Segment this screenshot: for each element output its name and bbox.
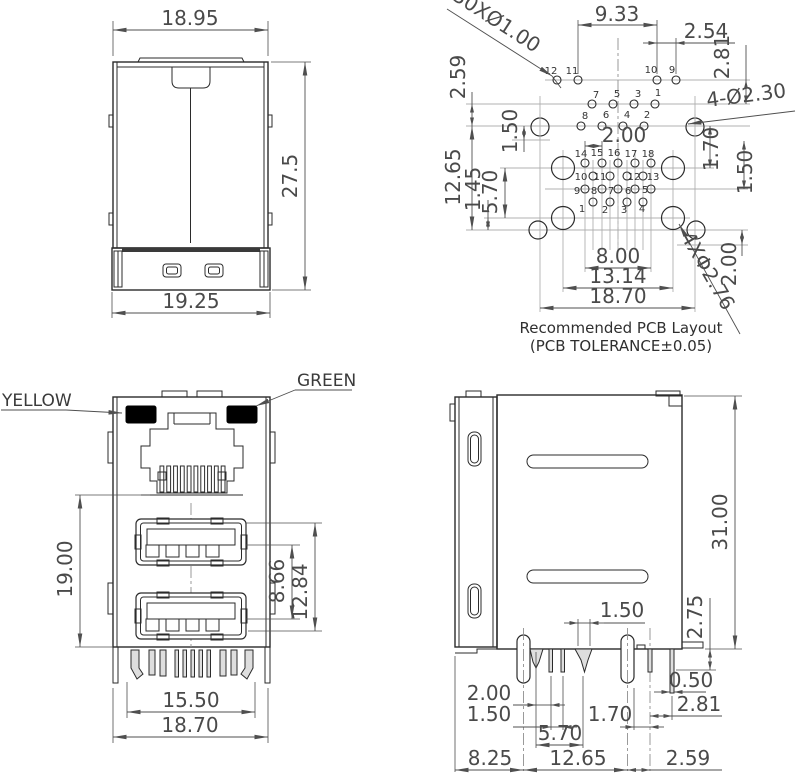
- pin-label: 8: [591, 186, 597, 197]
- dim-text-18-95: 18.95: [161, 6, 218, 30]
- label-30x-holes: 30XØ1.00: [449, 0, 545, 57]
- dim-text-27-5: 27.5: [278, 154, 302, 199]
- pin-label: 8: [582, 111, 588, 122]
- pin-label: 2: [602, 205, 608, 216]
- svg-text:1.50: 1.50: [600, 598, 645, 622]
- svg-text:2.59: 2.59: [446, 55, 470, 100]
- pin-label: 6: [603, 110, 609, 121]
- svg-text:1.50: 1.50: [733, 150, 757, 195]
- svg-text:1.70: 1.70: [588, 702, 633, 726]
- usb-port-2: [135, 592, 247, 640]
- dim-2-00-right: 2.00: [717, 230, 742, 286]
- svg-text:2.00: 2.00: [717, 242, 741, 287]
- pin-label: 1: [655, 88, 661, 99]
- pin-label: 11: [566, 66, 579, 77]
- dim-27-5: 27.5: [271, 62, 311, 290]
- svg-text:18.70: 18.70: [589, 284, 646, 308]
- svg-text:12.84: 12.84: [288, 563, 312, 620]
- pin-label: 10: [645, 65, 658, 76]
- pin-label: 9: [669, 65, 675, 76]
- base-slot-right: [205, 264, 223, 277]
- pin-label: 17: [625, 149, 638, 160]
- svg-text:19.00: 19.00: [53, 540, 77, 597]
- svg-text:5.70: 5.70: [478, 170, 502, 215]
- technical-drawing-page: 18.95 27.5 19.25: [0, 0, 800, 773]
- side-body-outline: [497, 395, 682, 649]
- pin-label: 5: [614, 89, 620, 100]
- dim-18-95: 18.95: [113, 6, 268, 56]
- svg-text:8.25: 8.25: [468, 746, 513, 770]
- pin-label: 6: [625, 186, 631, 197]
- pcb-holes-top: [553, 76, 680, 130]
- shield-base-outline: [112, 248, 270, 290]
- svg-text:2.75: 2.75: [683, 595, 707, 640]
- pin-label: 15: [591, 148, 604, 159]
- pin-label: 16: [608, 148, 621, 159]
- dim-1-50-right: 1.50: [733, 141, 757, 194]
- label-green-led: GREEN: [256, 371, 356, 406]
- led-yellow: [126, 406, 156, 423]
- side-dimple-bottom: [527, 570, 648, 583]
- svg-text:5.70: 5.70: [538, 721, 583, 745]
- view-shield-front: 18.95 27.5 19.25: [109, 6, 311, 318]
- dim-2-59-pcb: 2.59: [446, 55, 472, 126]
- svg-text:1.50: 1.50: [498, 109, 522, 154]
- led-left-label: YELLOW: [1, 391, 72, 411]
- pin-label: 1: [579, 204, 585, 215]
- dim-text-19-25: 19.25: [162, 289, 219, 313]
- dim-1-50-left: 1.50: [498, 109, 524, 154]
- pin-label: 4: [624, 110, 630, 121]
- pin-label: 14: [575, 149, 588, 160]
- leader-4-230-holes: 4-Ø2.30: [688, 78, 795, 124]
- pin-label: 7: [593, 90, 599, 101]
- svg-text:2.81: 2.81: [710, 35, 734, 80]
- pin-label: 10: [575, 172, 588, 183]
- pin-label: 12: [628, 172, 641, 183]
- pin-label: 5: [642, 185, 648, 196]
- svg-text:31.00: 31.00: [708, 493, 732, 550]
- svg-text:8.66: 8.66: [265, 559, 289, 604]
- pin-label: 18: [642, 149, 655, 160]
- svg-text:12.65: 12.65: [549, 746, 606, 770]
- led-right-label: GREEN: [297, 371, 356, 391]
- view-connector-front: YELLOW GREEN: [1, 371, 356, 743]
- view-pcb-layout: 12 11 10 9 7 5 3 1 8 6 4 2 14 15 16 17 1…: [441, 0, 795, 355]
- dim-5-70-pcb: 5.70: [478, 168, 505, 218]
- pcb-tolerance-note: (PCB TOLERANCE±0.05): [530, 337, 712, 355]
- led-green: [227, 406, 257, 423]
- shield-latch-tab: [172, 67, 210, 88]
- rj45-contacts: [160, 466, 225, 492]
- pin-label: 7: [608, 186, 614, 197]
- pin-label: 2: [644, 110, 650, 121]
- dim-1-70-pcb: 1.70: [699, 126, 723, 171]
- label-yellow-led: YELLOW: [1, 391, 122, 413]
- svg-text:2.00: 2.00: [602, 123, 647, 147]
- svg-text:9.33: 9.33: [595, 2, 640, 26]
- svg-text:15.50: 15.50: [162, 688, 219, 712]
- pin-label: 3: [635, 89, 641, 100]
- view-connector-side: 31.00 2.75 0.50 2.81 1.50: [450, 391, 742, 772]
- side-right-foot: [682, 642, 703, 648]
- pin-label: 9: [574, 186, 580, 197]
- pin-label: 13: [647, 172, 660, 183]
- dim-19-25: 19.25: [112, 289, 270, 318]
- svg-text:0.50: 0.50: [669, 668, 714, 692]
- dim-5-70-side: 5.70: [536, 676, 583, 748]
- side-dimple-top: [527, 455, 648, 468]
- pin-label: 4: [639, 204, 645, 215]
- dim-9-33: 9.33: [578, 2, 657, 74]
- base-slot-left: [163, 264, 181, 277]
- dim-1-70-side: 1.70: [588, 688, 664, 730]
- svg-text:2.59: 2.59: [666, 746, 711, 770]
- dim-0-50: 0.50: [654, 668, 713, 692]
- svg-text:2.81: 2.81: [677, 692, 722, 716]
- pin-label: 11: [594, 172, 607, 183]
- drawing-canvas: 18.95 27.5 19.25: [0, 0, 800, 773]
- pin-label: 3: [621, 205, 627, 216]
- svg-text:1.70: 1.70: [699, 127, 723, 172]
- side-flange: [455, 397, 497, 647]
- dim-2-81-side: 2.81: [650, 692, 722, 720]
- rj45-port: [141, 413, 243, 493]
- pcb-caption: Recommended PCB Layout: [520, 319, 723, 337]
- front-pins: [113, 647, 270, 683]
- svg-text:1.50: 1.50: [467, 702, 512, 726]
- usb-port-1: [135, 518, 247, 566]
- svg-text:18.70: 18.70: [161, 713, 218, 737]
